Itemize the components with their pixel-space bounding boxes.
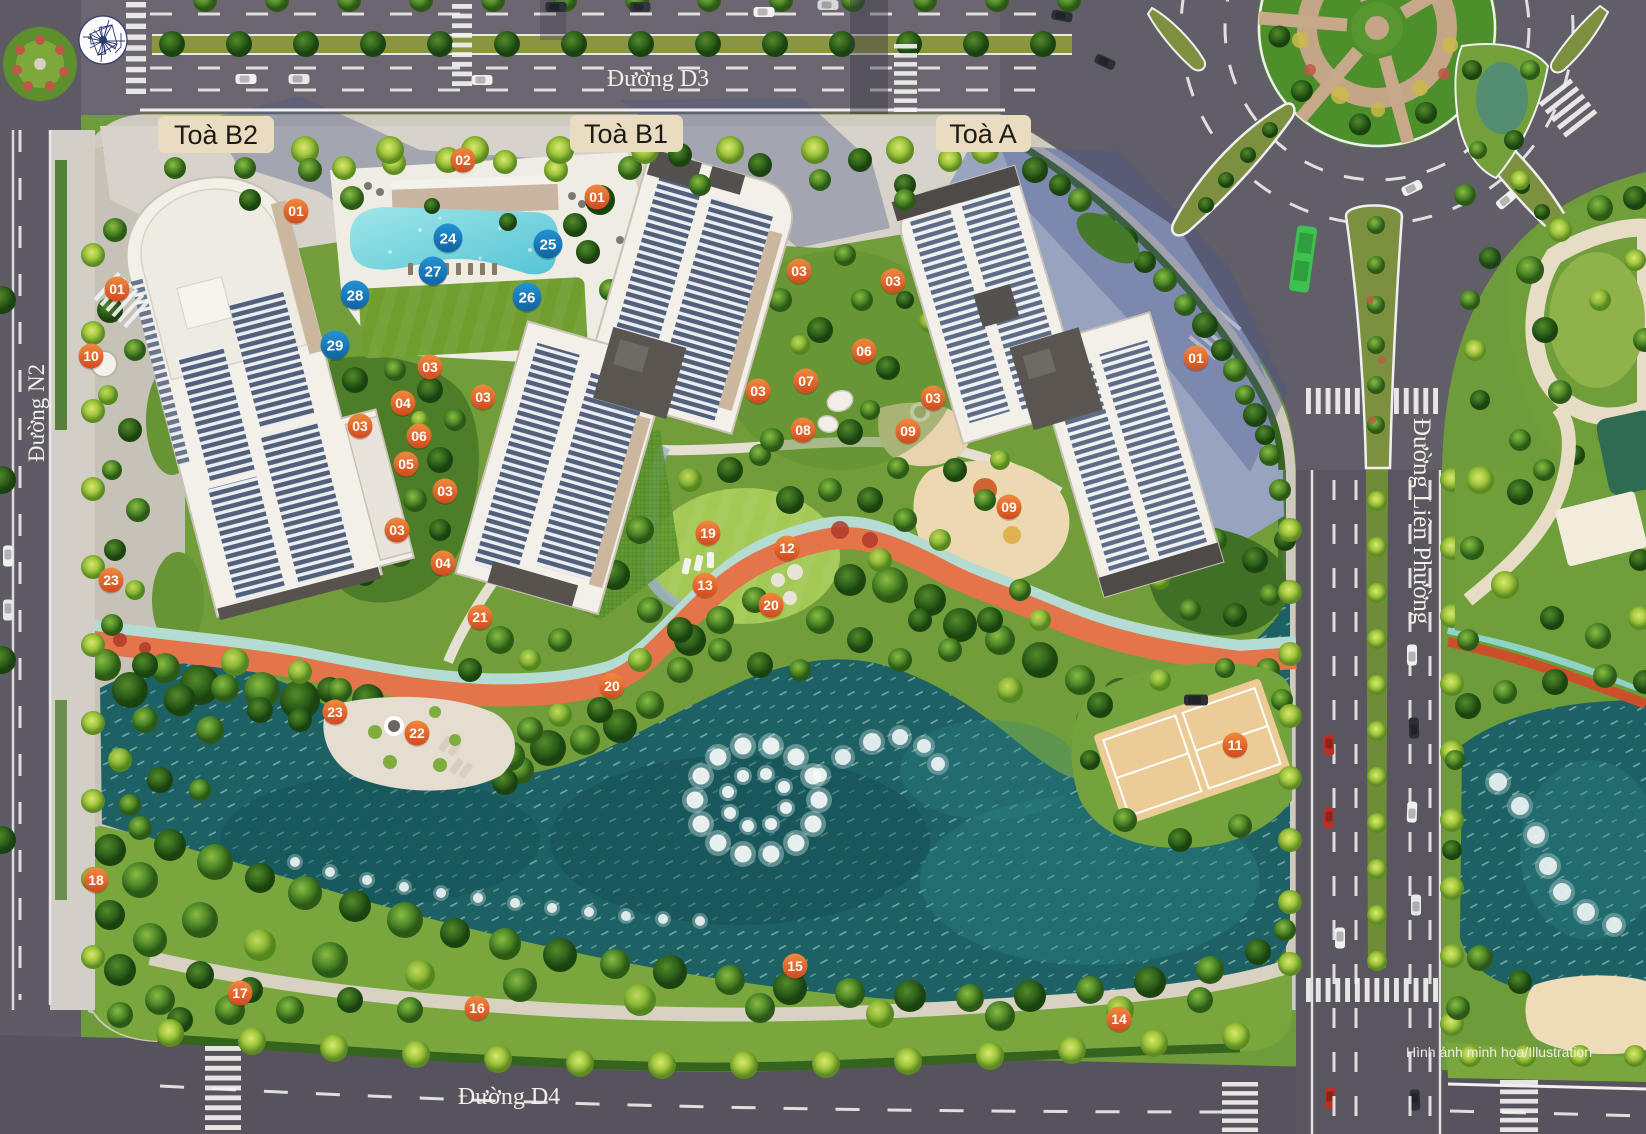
svg-text:27: 27 [425, 263, 442, 280]
svg-text:03: 03 [437, 483, 453, 499]
svg-text:11: 11 [1228, 737, 1243, 753]
svg-text:13: 13 [697, 577, 713, 593]
svg-text:09: 09 [900, 423, 916, 439]
svg-text:Toà B1: Toà B1 [584, 119, 668, 149]
svg-text:07: 07 [798, 373, 814, 389]
svg-text:04: 04 [395, 395, 411, 411]
svg-text:03: 03 [791, 263, 807, 279]
svg-text:03: 03 [475, 389, 491, 405]
svg-text:Đường Liên Phường: Đường Liên Phường [1408, 418, 1435, 625]
svg-text:09: 09 [1001, 499, 1017, 515]
svg-text:01: 01 [109, 281, 125, 297]
svg-text:03: 03 [389, 522, 405, 538]
svg-text:06: 06 [411, 428, 427, 444]
svg-text:Hình ảnh minh họa/Illustration: Hình ảnh minh họa/Illustration [1406, 1044, 1592, 1060]
svg-text:23: 23 [103, 572, 119, 588]
svg-text:16: 16 [469, 1000, 485, 1016]
svg-text:02: 02 [455, 152, 471, 168]
svg-text:15: 15 [787, 958, 803, 974]
svg-text:Toà B2: Toà B2 [174, 120, 258, 150]
svg-text:03: 03 [352, 418, 368, 434]
svg-text:17: 17 [232, 985, 248, 1001]
svg-text:03: 03 [750, 383, 766, 399]
svg-text:26: 26 [519, 289, 536, 306]
svg-text:14: 14 [1111, 1011, 1127, 1027]
svg-text:29: 29 [327, 337, 344, 354]
svg-text:03: 03 [422, 359, 438, 375]
svg-text:Đường D3: Đường D3 [607, 66, 709, 92]
svg-text:19: 19 [700, 525, 716, 541]
svg-text:20: 20 [763, 597, 779, 613]
svg-text:03: 03 [885, 273, 901, 289]
svg-text:25: 25 [540, 236, 557, 253]
svg-text:10: 10 [83, 348, 99, 364]
svg-text:01: 01 [1188, 350, 1204, 366]
svg-text:01: 01 [589, 189, 605, 205]
svg-text:23: 23 [327, 704, 343, 720]
svg-text:12: 12 [779, 540, 795, 556]
svg-text:04: 04 [435, 555, 451, 571]
svg-text:28: 28 [347, 287, 364, 304]
svg-text:03: 03 [925, 390, 941, 406]
svg-text:06: 06 [856, 343, 872, 359]
svg-text:01: 01 [288, 203, 304, 219]
svg-text:20: 20 [604, 678, 620, 694]
svg-text:Đường D4: Đường D4 [458, 1084, 560, 1110]
svg-text:24: 24 [440, 230, 457, 247]
svg-text:18: 18 [88, 872, 104, 888]
svg-text:Đường N2: Đường N2 [24, 364, 49, 462]
svg-text:22: 22 [409, 725, 425, 741]
svg-text:08: 08 [795, 422, 811, 438]
svg-text:21: 21 [472, 609, 488, 625]
svg-text:Toà A: Toà A [949, 119, 1017, 149]
svg-text:05: 05 [398, 456, 414, 472]
